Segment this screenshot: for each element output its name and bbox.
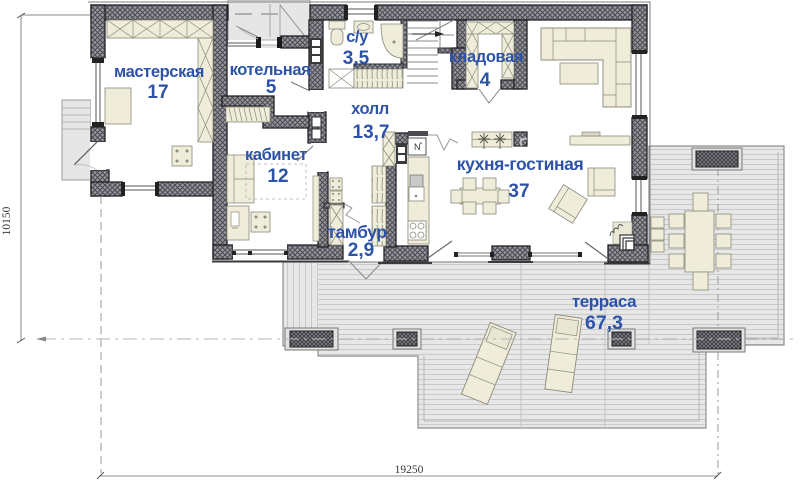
svg-text:мастерская: мастерская: [114, 63, 204, 81]
svg-text:19250: 19250: [395, 464, 424, 476]
svg-text:12: 12: [267, 166, 288, 187]
svg-text:терраса: терраса: [572, 292, 637, 311]
svg-text:холл: холл: [351, 100, 389, 118]
svg-text:кухня-гостиная: кухня-гостиная: [457, 154, 584, 174]
svg-text:13,7: 13,7: [353, 122, 390, 143]
svg-text:кладовая: кладовая: [449, 48, 523, 66]
svg-text:тамбур: тамбур: [327, 222, 386, 242]
svg-text:10150: 10150: [1, 206, 13, 235]
svg-text:кабинет: кабинет: [245, 146, 307, 164]
svg-text:17: 17: [147, 82, 168, 103]
svg-text:5: 5: [266, 77, 277, 98]
svg-text:4: 4: [480, 70, 491, 91]
svg-text:2,9: 2,9: [348, 240, 374, 261]
svg-text:с/у: с/у: [346, 28, 369, 46]
svg-text:3,5: 3,5: [343, 48, 370, 69]
svg-text:67,3: 67,3: [585, 312, 623, 334]
svg-text:37: 37: [508, 181, 529, 202]
svg-text:N: N: [414, 142, 421, 152]
